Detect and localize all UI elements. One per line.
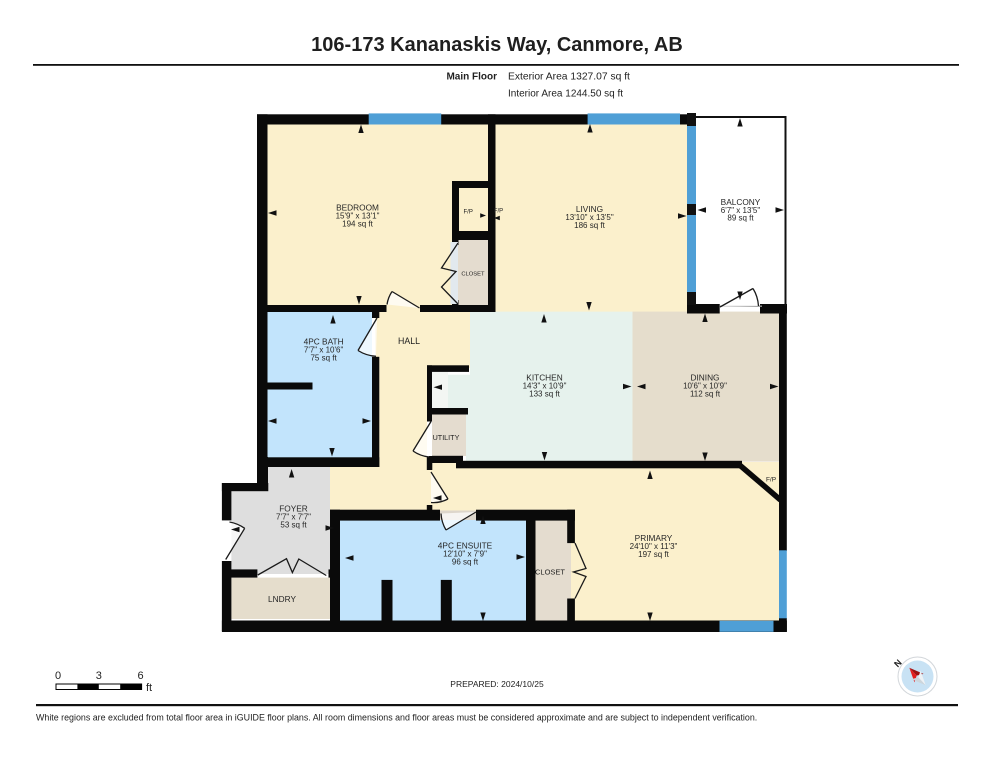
- svg-text:112 sq ft: 112 sq ft: [690, 390, 721, 399]
- svg-text:197 sq ft: 197 sq ft: [638, 550, 669, 559]
- svg-text:133 sq ft: 133 sq ft: [529, 390, 560, 399]
- svg-text:LNDRY: LNDRY: [268, 594, 296, 604]
- svg-text:CLOSET: CLOSET: [535, 568, 565, 577]
- svg-text:3: 3: [96, 670, 102, 682]
- svg-text:6: 6: [138, 670, 144, 682]
- svg-text:186 sq ft: 186 sq ft: [574, 221, 605, 230]
- svg-text:106-173 Kananaskis Way, Canmor: 106-173 Kananaskis Way, Canmore, AB: [311, 34, 683, 56]
- svg-text:Exterior Area 1327.07 sq ft: Exterior Area 1327.07 sq ft: [508, 72, 630, 83]
- svg-text:53 sq ft: 53 sq ft: [280, 521, 307, 530]
- svg-text:PREPARED: 2024/10/25: PREPARED: 2024/10/25: [450, 679, 544, 689]
- svg-text:UTILITY: UTILITY: [433, 433, 460, 442]
- svg-text:White regions are excluded fro: White regions are excluded from total fl…: [36, 713, 757, 723]
- svg-text:96 sq ft: 96 sq ft: [452, 558, 479, 567]
- svg-text:F/P: F/P: [464, 210, 473, 216]
- svg-text:ft: ft: [146, 682, 152, 694]
- svg-text:F/P: F/P: [766, 477, 776, 484]
- svg-text:89 sq ft: 89 sq ft: [727, 214, 754, 223]
- svg-text:F/P: F/P: [494, 209, 503, 215]
- svg-text:0: 0: [55, 670, 61, 682]
- svg-text:Main Floor: Main Floor: [446, 72, 497, 83]
- svg-text:194 sq ft: 194 sq ft: [342, 220, 373, 229]
- svg-text:Interior Area 1244.50 sq ft: Interior Area 1244.50 sq ft: [508, 89, 623, 100]
- svg-text:HALL: HALL: [398, 336, 420, 346]
- svg-text:75 sq ft: 75 sq ft: [310, 354, 337, 363]
- svg-text:CLOSET: CLOSET: [461, 272, 485, 278]
